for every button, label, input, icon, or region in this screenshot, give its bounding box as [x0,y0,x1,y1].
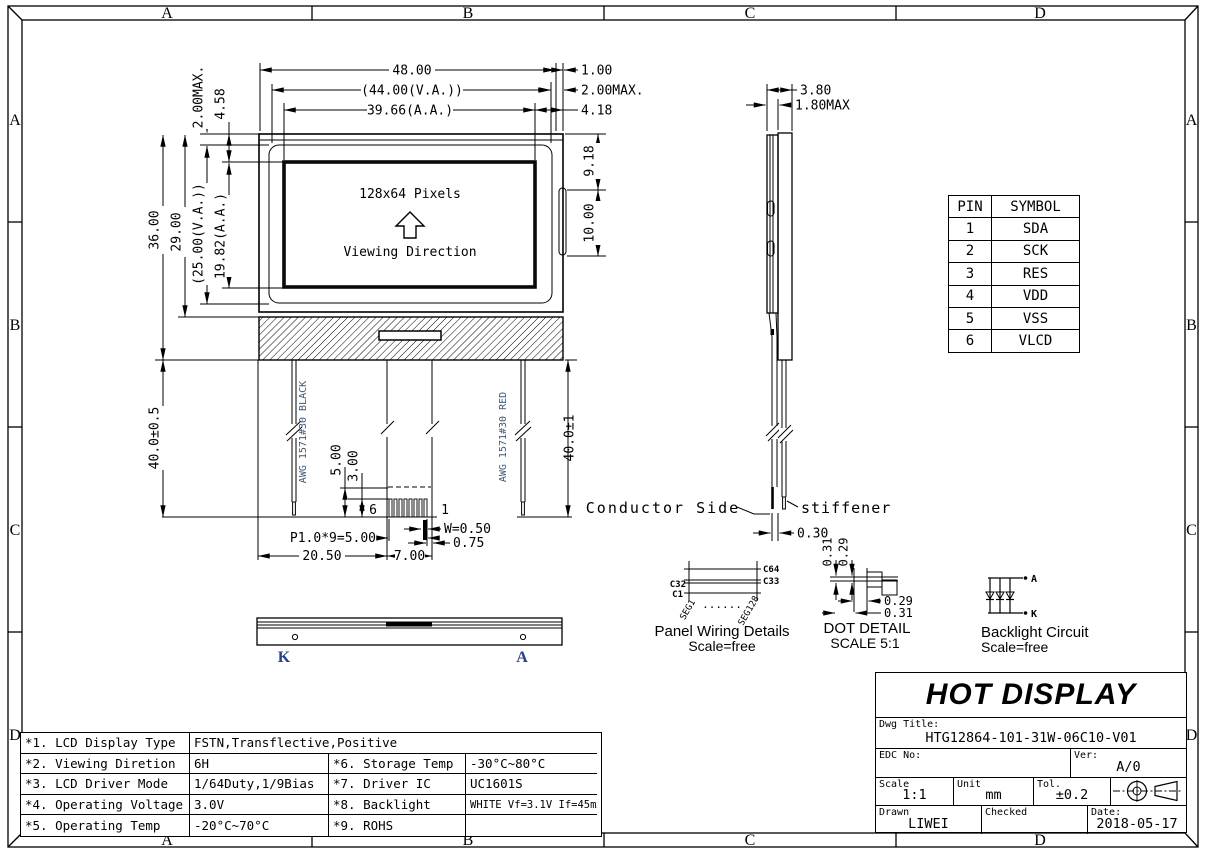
pin-number: 3 [949,263,992,285]
pw-seg1: SEG1 [679,598,699,622]
dwg-title-value: HTG12864-101-31W-06C10-V01 [876,730,1186,746]
dd-031-right: 0.31 [884,606,913,620]
spec-label: *8. Backlight [329,795,466,816]
dim-500: 5.00 [330,444,345,475]
dim-180max: 1.80MAX [795,99,850,114]
unit-value: mm [954,787,1033,803]
scale-value: 1:1 [876,787,953,803]
dim-40-05: 40.0±0.5 [148,407,163,470]
zone-right-b: B [1186,317,1197,334]
dim-380: 3.80 [800,84,831,99]
pin-number: 6 [949,330,992,351]
viewing-direction-label: Viewing Direction [343,245,476,260]
zone-bottom-d: D [1034,832,1046,849]
dim-36: 36.00 [148,210,163,249]
pw-dots: ...... [702,598,742,611]
spec-label: *6. Storage Temp [329,754,466,775]
pw-c33: C33 [763,577,779,587]
dim-300: 3.00 [347,450,362,481]
zone-left-a: A [9,112,21,129]
spec-label: *2. Viewing Diretion [21,754,190,775]
zone-left-c: C [10,522,21,539]
dim-25-va: (25.00(V.A.)) [192,183,207,285]
pin-number: 4 [949,286,992,308]
spec-table: *1. LCD Display Type FSTN,Transflective,… [20,732,602,837]
third-angle-projection-icon [1111,778,1185,804]
spec-value: -20°C~70°C [190,815,329,836]
bottom-view-a-label: A [516,649,528,666]
zone-right-a: A [1186,112,1198,129]
dim-458: 4.58 [214,88,229,119]
pin-table-header-symbol: SYMBOL [992,196,1079,218]
spec-label: *3. LCD Driver Mode [21,774,190,795]
title-block: HOT DISPLAY Dwg Title: HTG12864-101-31W-… [875,672,1187,833]
pw-c32: C32 [670,580,686,590]
pin-symbol: SDA [992,218,1079,240]
spec-value: UC1601S [466,774,597,795]
edc-ver-row: EDC No: Ver: A/0 [876,749,1186,778]
bl-anode-label: A [1031,574,1037,585]
pin-symbol: VSS [992,308,1079,330]
dim-1982-aa: 19.82(A.A.) [214,193,229,279]
dim-3966-aa: 39.66(A.A.) [367,104,453,119]
pin1-label: 1 [441,503,449,518]
company-logo-text: HOT DISPLAY [926,678,1136,712]
zone-bottom-c: C [745,832,756,849]
spec-value: 3.0V [190,795,329,816]
zone-top-d: D [1034,5,1046,22]
dim-48: 48.00 [392,64,431,79]
spec-label: *9. ROHS [329,815,466,836]
company-logo: HOT DISPLAY [876,673,1186,718]
dim-100: 1.00 [581,64,612,79]
pixels-label: 128x64 Pixels [359,187,461,202]
bottom-view-k-label: K [278,649,291,666]
spec-label: *1. LCD Display Type [21,733,190,754]
dim-29: 29.00 [170,212,185,251]
zone-top-b: B [463,5,474,22]
edc-no-label: EDC No: [879,750,921,761]
dim-200max-left: 2.00MAX. [192,66,207,129]
dim-44-va: (44.00(V.A.)) [361,84,463,99]
pin-number: 1 [949,218,992,240]
pin-table-header-pin: PIN [949,196,992,218]
wire-right-label: AWG 1571#30 RED [498,392,509,482]
drawn-value: LIWEI [876,816,981,832]
spec-value: 1/64Duty,1/9Bias [190,774,329,795]
panel-wiring-diagram [684,561,761,601]
backlight-circuit-diagram [986,576,1027,615]
backlight-scale: Scale=free [981,639,1049,655]
dim-418: 4.18 [581,104,612,119]
conductor-side-label: Conductor Side [586,499,740,517]
dd-031-top: 0.31 [821,538,835,567]
spec-value [466,815,597,836]
dim-pitch: P1.0*9=5.00 [290,531,376,546]
pin-symbol: VLCD [992,330,1079,351]
dim-1000: 10.00 [583,203,598,242]
dim-200max-right: 2.00MAX. [581,84,644,99]
pin-symbol: RES [992,263,1079,285]
dim-075: 0.75 [453,536,484,551]
stiffener-label: stiffener [801,499,891,517]
pin-table: PIN SYMBOL 1 SDA 2 SCK 3 RES 4 VDD 5 VSS… [948,195,1080,353]
ver-value: A/0 [1071,759,1186,775]
zone-right-d: D [1186,727,1198,744]
bottom-view [257,618,562,645]
pin-symbol: SCK [992,241,1079,263]
checked-label: Checked [985,807,1027,818]
spec-label: *7. Driver IC [329,774,466,795]
pw-c1: C1 [672,590,683,600]
dwg-title-row: Dwg Title: HTG12864-101-31W-06C10-V01 [876,718,1186,749]
engineering-drawing-sheet: A B C D A B C D A B C D A B C D 128x64 P… [0,0,1207,854]
zone-top-c: C [745,5,756,22]
pin6-label: 6 [369,503,377,518]
spec-value: 6H [190,754,329,775]
bl-cathode-label: K [1031,609,1037,620]
pw-c64: C64 [763,565,780,575]
pin-symbol: VDD [992,286,1079,308]
pin-number: 2 [949,241,992,263]
dd-029-top: 0.29 [837,538,851,567]
dim-2050: 20.50 [302,549,341,564]
dimension-lines [155,63,606,556]
spec-value: FSTN,Transflective,Positive [190,733,597,754]
zone-top-a: A [161,5,173,22]
dim-w050: W=0.50 [444,522,491,537]
scale-unit-tol-row: Scale 1:1 Unit mm Tol. ±0.2 [876,778,1186,806]
drawn-checked-date-row: Drawn LIWEI Checked Date: 2018-05-17 [876,806,1186,834]
dot-detail-scale: SCALE 5:1 [830,635,899,651]
date-value: 2018-05-17 [1088,816,1186,832]
dim-700: 7.00 [394,549,425,564]
dwg-title-label: Dwg Title: [879,719,939,730]
panel-wiring-scale: Scale=free [688,638,756,654]
zone-right-c: C [1186,522,1197,539]
side-view [737,84,798,541]
spec-label: *4. Operating Voltage [21,795,190,816]
dim-40-1: 40.0±1 [563,415,578,462]
spec-label: *5. Operating Temp [21,815,190,836]
dim-918: 9.18 [583,145,598,176]
spec-value: WHITE Vf=3.1V If=45mA [466,795,597,816]
wire-left-label: AWG 1571#30 BLACK [298,381,309,483]
tol-value: ±0.2 [1034,787,1110,803]
zone-left-b: B [10,317,21,334]
pin-number: 5 [949,308,992,330]
spec-value: -30°C~80°C [466,754,597,775]
